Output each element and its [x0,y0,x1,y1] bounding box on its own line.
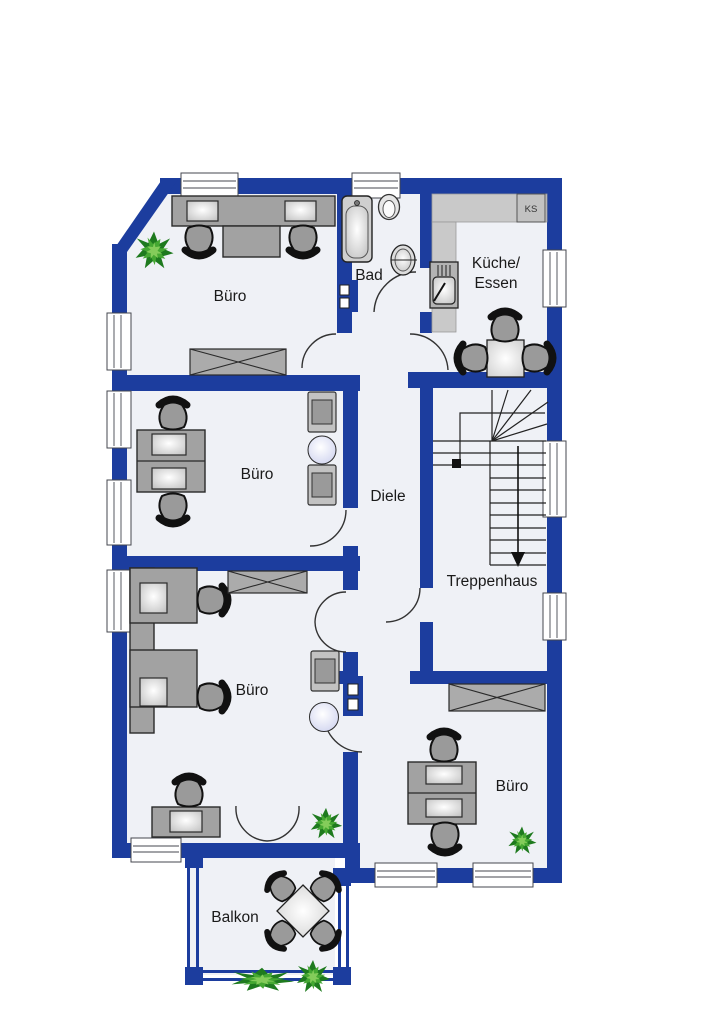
office-chair [431,823,459,854]
window [543,250,566,307]
armchair [308,392,336,432]
window [352,173,400,198]
window [543,593,566,640]
office-chair [159,399,187,430]
bathtub [342,196,372,262]
cabinet [190,349,286,375]
window [473,863,533,887]
stair-newel [452,459,461,468]
room-label-buero-mid: Büro [241,466,274,483]
armchair [311,651,339,691]
window [543,441,566,517]
window [375,863,437,887]
toilet [379,195,400,220]
window [107,480,131,545]
monitor [170,811,202,832]
side-table [308,436,336,464]
monitor [426,766,462,784]
office-chair [159,494,187,525]
office-chair [198,586,229,614]
office-desk-return [223,226,280,257]
monitor [152,468,186,489]
floor-plan-page: KS [0,0,724,1024]
window [131,838,181,862]
cabinet [449,684,545,711]
floor-plan: KS [0,0,724,1024]
room-label-buero-bottom-left: Büro [236,682,269,699]
window [107,391,131,448]
monitor [140,678,167,706]
monitor [140,583,167,613]
office-chair [175,776,203,807]
office-chair [430,731,458,762]
fridge-box: KS [517,194,545,222]
office-chair [289,226,317,257]
kitchen-table [487,340,524,377]
window [107,570,131,632]
room-label-bad: Bad [355,267,383,284]
cabinet [228,571,307,593]
window [107,313,131,370]
room-label-diele: Diele [370,488,405,505]
armchair [308,465,336,505]
dining-chair [457,344,488,372]
monitor [426,799,462,817]
monitor [285,201,316,221]
room-label-buero-bottom-right: Büro [496,778,529,795]
office-chair [185,226,213,257]
office-chair [198,683,229,711]
room-label-buero-top: Büro [214,288,247,305]
side-table [310,703,339,732]
room-label-kueche-line2: Essen [474,275,517,292]
room-label-treppenhaus: Treppenhaus [447,573,538,590]
dining-chair [523,344,554,372]
room-label-balkon: Balkon [211,909,258,926]
monitor [187,201,218,221]
fridge-label: KS [525,204,538,215]
monitor [152,434,186,455]
kitchen-sink [430,262,458,308]
dining-chair [491,311,519,342]
window [181,173,238,198]
room-label-kueche-line1: Küche/ [472,255,521,272]
